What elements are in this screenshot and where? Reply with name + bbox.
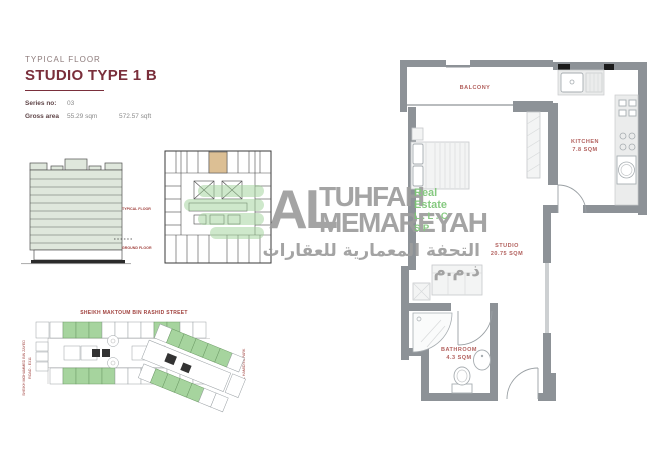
studio-label: STUDIO	[495, 243, 519, 249]
sink	[474, 350, 491, 370]
gross-area-row: Gross area 55.29 sqm 572.57 sqft	[25, 113, 157, 120]
site-building-2	[102, 349, 110, 357]
floorplan-sheet: TYPICAL FLOOR STUDIO TYPE 1 B Series no:…	[0, 0, 668, 452]
elevation-drawing: TYPICAL FLOOR GROUND FLOOR	[18, 150, 168, 272]
park-right-label: AL HAMIDIYA PARK	[242, 348, 246, 381]
elevation-body	[30, 170, 122, 250]
kitchen-area-label: 7.8 SQM	[572, 147, 597, 153]
kitchen-label: KITCHEN	[571, 139, 599, 145]
logo-line2: MEMAREYAH	[319, 210, 487, 237]
bathroom-door-arc	[458, 311, 492, 345]
bathroom-label: BATHROOM	[441, 347, 477, 353]
unit-floor-plan: BALCONY KITCHEN 7.8 SQM STUDIO 20.75 SQM…	[393, 52, 661, 424]
washer	[617, 156, 636, 184]
elevation-parapet	[30, 159, 122, 170]
logo-real-estate: Real Estate	[414, 187, 450, 211]
logo-subtitle: Real Estate L.L.C SP	[414, 187, 450, 234]
logo-wordmark: TUHFAH MEMAREYAH	[319, 184, 487, 237]
typical-floor-label: TYPICAL FLOOR	[122, 207, 151, 211]
ground-floor-label: GROUND FLOOR	[122, 246, 152, 250]
kitchen-window-1	[558, 64, 570, 70]
title-block: TYPICAL FLOOR STUDIO TYPE 1 B Series no:…	[25, 55, 157, 125]
series-value: 03	[67, 100, 119, 107]
balcony-label: BALCONY	[460, 85, 491, 91]
series-label: Series no:	[25, 100, 67, 107]
highlighted-unit	[209, 152, 227, 173]
toilet	[452, 367, 472, 393]
balcony-glass-line	[407, 104, 513, 106]
page-title: STUDIO TYPE 1 B	[25, 67, 157, 84]
entry-door-arc	[507, 368, 538, 399]
site-plan: SHEIKH MAKTOUM BIN RASHID STREET SHEIKH …	[12, 296, 268, 438]
gross-area-sqft: 572.57 sqft	[119, 113, 151, 120]
title-underline	[25, 90, 104, 91]
kitchen-door-arc	[558, 185, 586, 213]
site-building-1	[92, 349, 100, 357]
kitchen-counter-top	[558, 70, 604, 95]
floor-type-label: TYPICAL FLOOR	[25, 55, 157, 64]
gross-area-label: Gross area	[25, 113, 67, 120]
wardrobe	[527, 112, 540, 178]
studio-area-label: 20.75 SQM	[491, 251, 523, 257]
elevation-base	[31, 260, 125, 263]
road-left-label-2: ROAD - E311	[28, 357, 32, 379]
logo-bars	[184, 185, 264, 239]
logo-llc: L.L.C SP	[414, 211, 450, 234]
logo-arabic-text: التحفة المعمارية للعقارات ذ.م.م	[248, 241, 480, 281]
kitchen-window-2	[604, 64, 614, 70]
road-left-label-1: SHEIKH MOHAMMED BIN ZAYED	[22, 340, 26, 396]
logo-watermark-icon	[184, 183, 268, 247]
street-top-label: SHEIKH MAKTOUM BIN RASHID STREET	[80, 310, 188, 316]
side-table	[413, 283, 430, 300]
bathroom-area-label: 4.3 SQM	[446, 355, 471, 361]
kitchen-counter-right	[615, 95, 638, 205]
series-row: Series no: 03	[25, 100, 157, 107]
elevation-ground-floor	[34, 250, 122, 260]
studio-window	[545, 263, 549, 333]
roundabout-1	[108, 336, 119, 347]
roundabout-2	[108, 358, 119, 369]
nightstand	[412, 128, 423, 140]
gross-area-sqm: 55.29 sqm	[67, 113, 119, 120]
